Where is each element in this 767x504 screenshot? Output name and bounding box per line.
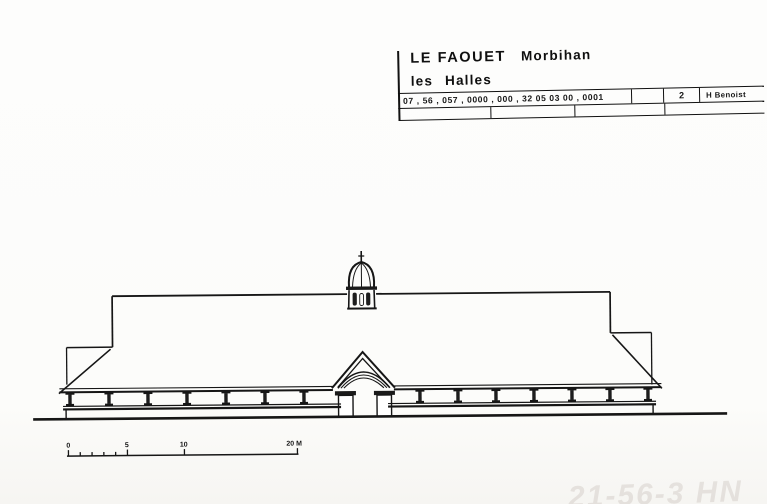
post — [299, 390, 308, 404]
post — [260, 391, 269, 405]
post — [491, 389, 500, 403]
post — [453, 389, 462, 403]
entrance-porch — [332, 352, 396, 417]
post — [529, 388, 538, 402]
scale-label-5: 5 — [125, 442, 129, 449]
post — [65, 393, 74, 407]
scale-label-0: 0 — [66, 443, 70, 450]
post — [643, 387, 652, 401]
post — [104, 392, 113, 406]
scale-bar: 0 5 10 20 M — [66, 441, 302, 457]
archive-watermark: 21-56-3 HN — [567, 475, 743, 504]
lantern-turret — [346, 251, 378, 309]
post — [143, 392, 152, 406]
post — [567, 388, 576, 402]
post — [182, 391, 191, 405]
scale-label-10: 10 — [180, 442, 188, 449]
elevation-drawing: 0 5 10 20 M — [0, 0, 767, 504]
post — [605, 388, 614, 402]
post — [415, 389, 424, 403]
post — [221, 391, 230, 405]
scale-label-20m: 20 M — [286, 441, 302, 448]
scanned-drawing-page: LE FAOUETMorbihan les Halles 07 , 56 , 0… — [0, 0, 767, 504]
